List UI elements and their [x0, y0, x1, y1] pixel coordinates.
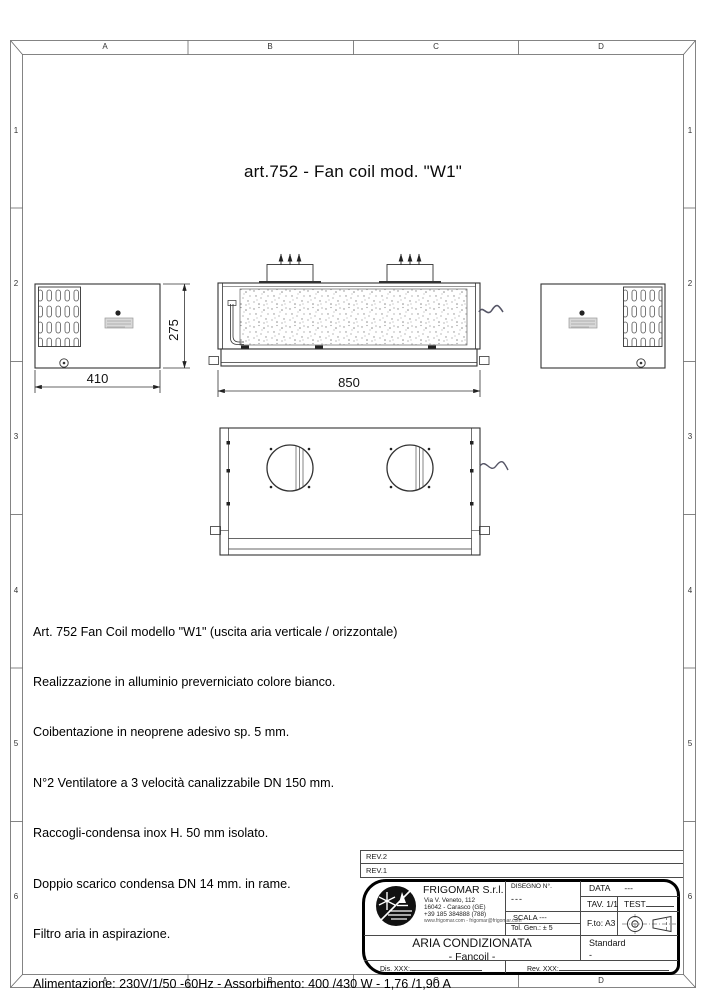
company-name: FRIGOMAR S.r.l.: [423, 884, 504, 896]
tav-field: TAV. 1/1: [587, 899, 618, 909]
rev-field: Rev. XXX:: [527, 963, 669, 973]
disegno-label: DISEGNO N°.: [511, 883, 552, 890]
grid-row-label-left-5: 5: [10, 739, 22, 749]
grid-row-label-right-2: 2: [684, 279, 696, 289]
side-view-left: [35, 284, 160, 368]
company-phone: +39 185 384888 (788): [424, 911, 486, 918]
spec-line: Coibentazione in neoprene adesivo sp. 5 …: [33, 724, 451, 741]
grid-col-label-top-b: B: [259, 42, 281, 52]
data-value: ---: [624, 883, 633, 893]
grid-col-label-top-d: D: [590, 42, 612, 52]
test-blank-line: [646, 899, 674, 907]
scala-field: SCALA ---: [513, 913, 547, 922]
spec-line: Alimentazione: 230V/1/50 -60Hz - Assorbi…: [33, 976, 451, 993]
grid-row-label-right-3: 3: [684, 432, 696, 442]
dim-length-label: 850: [338, 375, 360, 390]
rev-row-line: [360, 877, 683, 878]
company-address-line1: Via V. Veneto, 112: [424, 897, 475, 904]
rev2-label: REV.2: [366, 852, 387, 861]
page-title: art.752 - Fan coil mod. "W1": [0, 162, 706, 182]
top-view: [211, 428, 509, 555]
frigomar-logo: [374, 884, 418, 928]
spec-line: N°2 Ventilatore a 3 velocità canalizzabi…: [33, 775, 451, 792]
grid-row-label-right-5: 5: [684, 739, 696, 749]
grid-row-label-left-2: 2: [10, 279, 22, 289]
power-cable: [479, 306, 503, 313]
drawing-subject: ARIA CONDIZIONATA - Fancoil -: [364, 936, 580, 963]
subject-line-2: - Fancoil -: [364, 951, 580, 963]
tolerance-field: Tol. Gen.: ± 5: [511, 925, 553, 932]
airflow-arrows: [281, 254, 419, 265]
dis-label: Dis. XXX:: [380, 966, 410, 973]
company-web: www.frigomar.com - frigomar@frigomar.com: [424, 918, 522, 924]
side-view-right: [541, 284, 665, 368]
spec-line: Realizzazione in alluminio preverniciato…: [33, 674, 451, 691]
grid-row-label-left-4: 4: [10, 586, 22, 596]
rev-blank-line: [559, 963, 669, 971]
data-field: DATA---: [589, 883, 633, 893]
grid-col-label-top-c: C: [425, 42, 447, 52]
grid-row-label-left-3: 3: [10, 432, 22, 442]
front-view: [209, 254, 503, 366]
standard-line-1: Standard: [589, 938, 626, 948]
spec-line: Art. 752 Fan Coil modello "W1" (uscita a…: [33, 624, 451, 641]
grid-row-label-left-6: 6: [10, 892, 22, 902]
dim-height-label: 275: [166, 319, 181, 341]
grid-row-label-right-6: 6: [684, 892, 696, 902]
subject-line-1: ARIA CONDIZIONATA: [364, 936, 580, 950]
dis-field: Dis. XXX:: [380, 963, 482, 973]
data-label: DATA: [589, 883, 610, 893]
format-field: F.to: A3: [587, 918, 615, 928]
dis-blank-line: [410, 963, 482, 971]
test-field: TEST: [624, 899, 674, 909]
grid-row-label-right-4: 4: [684, 586, 696, 596]
grid-col-label-bottom-d: D: [590, 976, 612, 986]
title-block-divider: [580, 896, 679, 897]
title-block-divider: [505, 881, 506, 935]
rev-label: Rev. XXX:: [527, 966, 559, 973]
power-cable-top: [480, 462, 508, 470]
rev-row-line: [360, 850, 683, 851]
spec-line: Raccogli-condensa inox H. 50 mm isolato.: [33, 825, 451, 842]
first-angle-projection-icon: [620, 913, 678, 935]
title-block-divider: [505, 911, 679, 912]
grid-row-label-right-1: 1: [684, 126, 696, 136]
title-block-divider: [580, 881, 581, 960]
grid-col-label-top-a: A: [94, 42, 116, 52]
test-label: TEST: [624, 899, 646, 909]
disegno-value: ---: [511, 894, 523, 904]
dim-width-label: 410: [87, 371, 109, 386]
rev-row-line: [360, 863, 683, 864]
rev-row-line: [360, 850, 361, 877]
rev1-label: REV.1: [366, 866, 387, 875]
standard-line-2: -: [589, 950, 592, 960]
company-address-line2: 16042 - Carasco (GE): [424, 904, 486, 911]
grid-row-label-left-1: 1: [10, 126, 22, 136]
drawing-sheet: 410 850 275 A B C D A B C D 1 2 3 4 5 6 …: [0, 0, 706, 1000]
